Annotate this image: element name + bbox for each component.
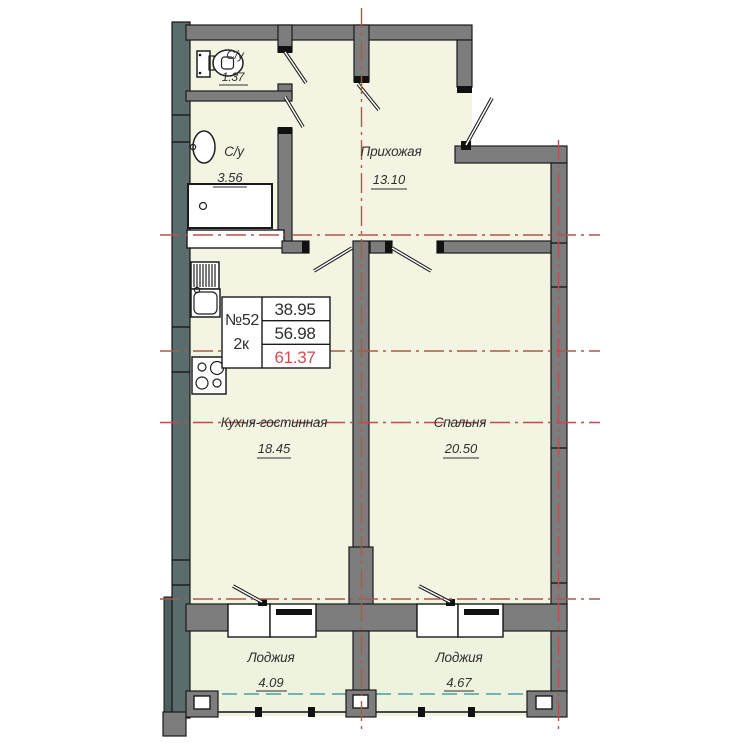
wc-bath-divider: [186, 91, 292, 101]
window-left: [270, 604, 316, 637]
unit-number: №52: [225, 312, 259, 329]
balcony-door-right: [417, 604, 458, 637]
glazing-mullion: [255, 707, 262, 717]
balcony-door-left: [228, 604, 270, 637]
wall-cap: [278, 127, 292, 134]
bathtub-icon: [188, 184, 272, 228]
unit-area-no-loggia: 56.98: [274, 324, 315, 343]
window-glazing-bar: [276, 609, 312, 615]
room-area-kitchen-living: 18.45: [258, 441, 291, 456]
glazing-mullion: [468, 707, 475, 717]
room-area-loggia-left: 4.09: [258, 675, 283, 690]
unit-total-area: 61.37: [274, 348, 315, 367]
room-label-bedroom: Спальня: [434, 415, 487, 430]
room-label-loggia-right: Лоджия: [434, 650, 482, 665]
unit-info-table: №52 2к 38.95 56.98 61.37: [222, 297, 330, 368]
wall-cap: [278, 46, 292, 53]
unit-layout: 2к: [233, 336, 250, 353]
glazing-mullion: [418, 707, 425, 717]
glazing-mullion: [308, 707, 315, 717]
top-wall: [186, 25, 472, 40]
wall-cap: [302, 241, 309, 253]
room-area-loggia-right: 4.67: [446, 675, 472, 690]
column-notch: [194, 696, 210, 709]
room-area-hallway: 13.10: [373, 172, 406, 187]
left-wall-foot: [163, 712, 186, 736]
bottom-wall-right: [503, 604, 567, 631]
bottom-wall-mid: [316, 604, 417, 631]
room-area-bathroom: 3.56: [217, 170, 243, 185]
floorplan-svg: №52 2к 38.95 56.98 61.37 С/у 1.37 С/у 3.…: [0, 0, 754, 754]
bath-east-wall-low: [278, 128, 292, 247]
wall-cap: [457, 86, 472, 93]
room-label-kitchen-living: Кухня-гостинная: [221, 415, 328, 430]
duct-shaft: [187, 230, 284, 248]
room-label-hallway: Прихожая: [360, 144, 421, 159]
room-label-wc: С/у: [226, 48, 245, 62]
floorplan-canvas: №52 2к 38.95 56.98 61.37 С/у 1.37 С/у 3.…: [0, 0, 754, 754]
unit-living-area: 38.95: [274, 300, 315, 319]
wall-cap: [437, 241, 444, 253]
column-notch: [536, 696, 552, 709]
room-area-wc: 1.37: [222, 70, 246, 84]
room-label-bathroom: С/у: [224, 144, 245, 159]
window-right: [458, 604, 503, 637]
bottom-wall-left: [186, 604, 228, 631]
window-glazing-bar: [464, 609, 499, 615]
room-label-loggia-left: Лоджия: [246, 650, 294, 665]
entry-side-wall: [455, 146, 567, 163]
top-right-wall: [457, 40, 472, 87]
room-area-bedroom: 20.50: [444, 441, 478, 456]
column-notch: [353, 695, 368, 708]
hall-room-divider-right: [437, 241, 551, 253]
wall-cap: [385, 241, 392, 253]
stove-icon: [192, 357, 226, 394]
kitchen-sink-icon: [191, 262, 220, 317]
